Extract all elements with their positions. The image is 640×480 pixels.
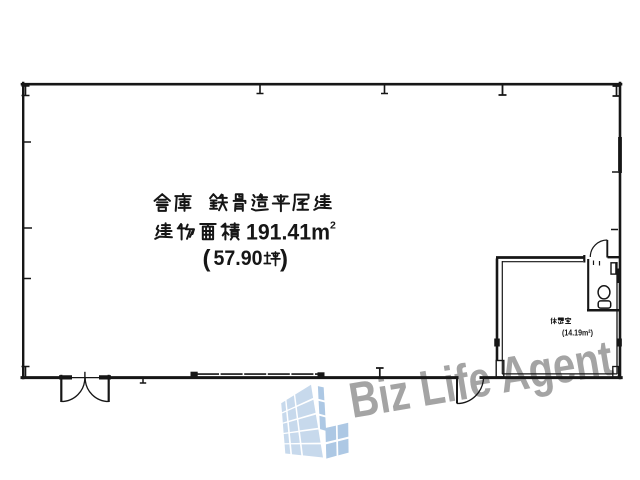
svg-text:(14.19m²): (14.19m²) [562, 328, 593, 338]
svg-text:2: 2 [330, 220, 336, 232]
svg-text:(: ( [203, 246, 211, 273]
svg-text:191.41m: 191.41m [246, 220, 330, 245]
svg-text:): ) [280, 246, 288, 273]
svg-text:57.90: 57.90 [214, 246, 263, 270]
